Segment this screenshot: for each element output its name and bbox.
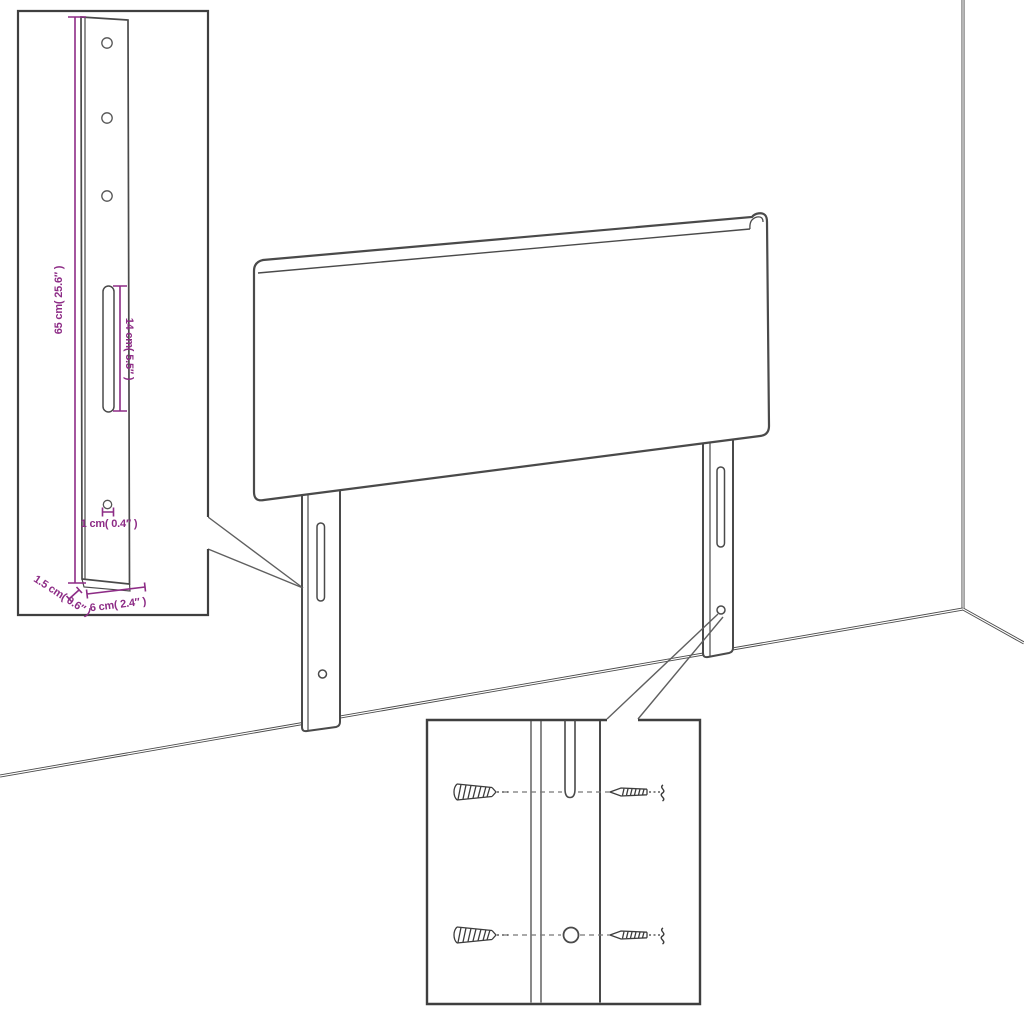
right-leg-slot [717,467,725,547]
line-art [0,0,1024,1024]
right-leg-hole [717,606,725,614]
bracket-hole-bottom [102,191,112,201]
headboard-panel [254,213,769,500]
bracket-small-hole [103,500,111,508]
callout-lines [208,517,723,719]
hole-diameter-label: 1 cm( 0.4″ ) [81,518,138,530]
left-leg-slot [317,523,325,601]
left-leg-hole [319,670,327,678]
slot-length-label: 14 cm( 5.5″ ) [123,318,135,381]
headboard-left-leg [302,468,340,731]
strip-hole [564,928,579,943]
mounting-detail-inset [427,720,700,1004]
bracket-slot [103,286,114,412]
bracket-hole-middle [102,113,112,123]
bracket-height-label: 65 cm( 25.6″ ) [53,266,65,335]
headboard-dimension-diagram: 65 cm( 25.6″ ) 14 cm( 5.5″ ) 1 cm( 0.4″ … [0,0,1024,1024]
bracket-hole-top [102,38,112,48]
